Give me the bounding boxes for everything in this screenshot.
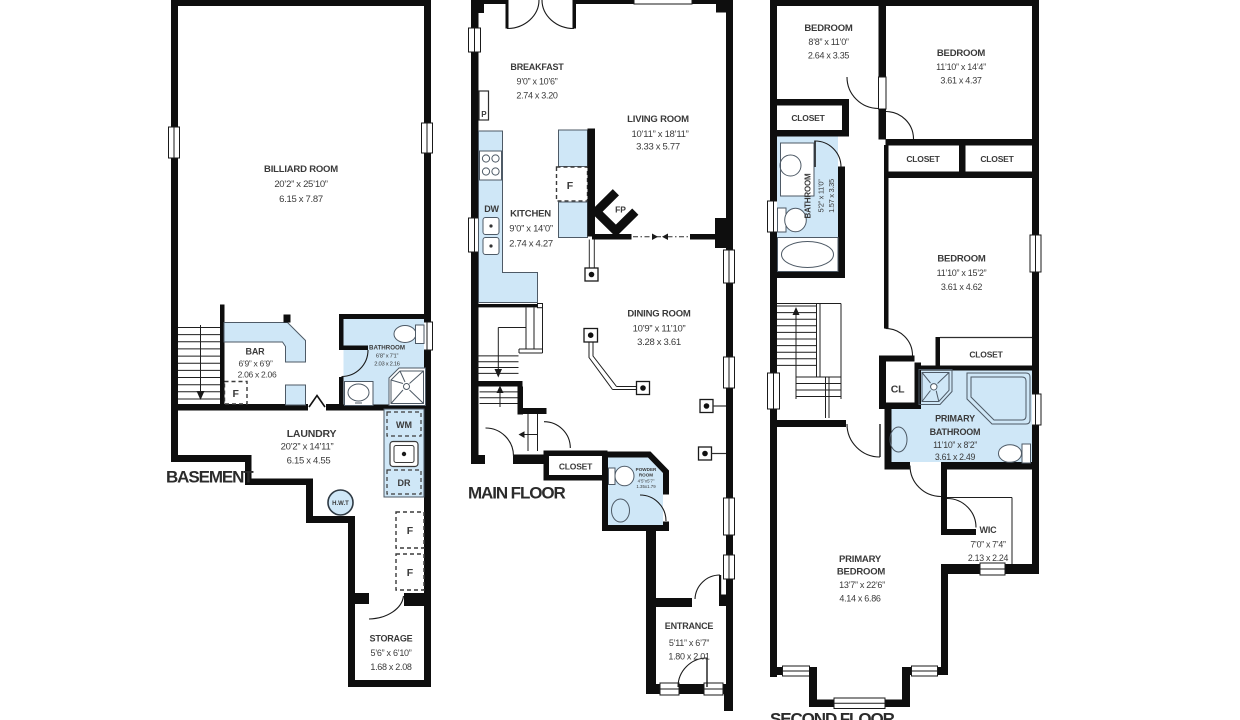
svg-text:DR: DR	[398, 478, 411, 488]
svg-text:9’0” x 14’0”: 9’0” x 14’0”	[509, 224, 553, 235]
svg-text:4.14 x 6.86: 4.14 x 6.86	[839, 594, 881, 604]
svg-text:SECOND FLOOR: SECOND FLOOR	[770, 710, 895, 720]
svg-text:ROOM: ROOM	[639, 473, 653, 478]
svg-text:BASEMENT: BASEMENT	[166, 468, 254, 487]
svg-text:1.80 x 2.01: 1.80 x 2.01	[668, 652, 710, 662]
svg-text:BREAKFAST: BREAKFAST	[510, 62, 564, 72]
svg-text:FP: FP	[615, 205, 626, 215]
svg-text:6’9” x 6’9”: 6’9” x 6’9”	[238, 359, 272, 369]
svg-text:11’10” x 14’4”: 11’10” x 14’4”	[936, 62, 986, 72]
svg-text:BILLIARD ROOM: BILLIARD ROOM	[264, 164, 338, 175]
svg-text:CLOSET: CLOSET	[559, 462, 593, 472]
svg-text:BATHROOM: BATHROOM	[369, 345, 405, 352]
svg-text:WIC: WIC	[980, 525, 998, 535]
svg-text:STORAGE: STORAGE	[370, 634, 413, 644]
svg-text:CLOSET: CLOSET	[969, 350, 1003, 360]
svg-text:3.33 x 5.77: 3.33 x 5.77	[636, 142, 680, 153]
svg-text:ENTRANCE: ENTRANCE	[665, 621, 714, 631]
svg-text:5’2” x 11’0”: 5’2” x 11’0”	[817, 179, 826, 213]
svg-text:7’0” x 7’4”: 7’0” x 7’4”	[970, 540, 1006, 550]
svg-text:8’8” x 11’0”: 8’8” x 11’0”	[808, 37, 849, 47]
svg-text:5’11” x 6’7”: 5’11” x 6’7”	[669, 638, 710, 648]
svg-text:F: F	[567, 180, 574, 192]
svg-text:6.15 x 7.87: 6.15 x 7.87	[279, 194, 323, 205]
svg-text:9’0” x 10’6”: 9’0” x 10’6”	[517, 77, 558, 87]
svg-text:LIVING ROOM: LIVING ROOM	[627, 114, 689, 125]
svg-text:1.57 x 3.35: 1.57 x 3.35	[827, 179, 836, 213]
svg-text:2.13 x 2.24: 2.13 x 2.24	[968, 553, 1009, 563]
svg-text:BEDROOM: BEDROOM	[937, 254, 985, 265]
svg-text:2.03 x 2.16: 2.03 x 2.16	[374, 362, 399, 368]
svg-text:BATHROOM: BATHROOM	[930, 427, 981, 437]
svg-text:5’6” x 6’10”: 5’6” x 6’10”	[371, 648, 412, 658]
svg-text:3.61 x 4.37: 3.61 x 4.37	[940, 76, 982, 86]
svg-text:P: P	[481, 110, 487, 119]
svg-text:3.61 x 4.62: 3.61 x 4.62	[941, 282, 983, 292]
svg-text:1.35x1.79: 1.35x1.79	[636, 484, 656, 489]
svg-text:POWDER: POWDER	[636, 467, 657, 472]
svg-text:20’2” x 25’10”: 20’2” x 25’10”	[274, 179, 327, 190]
svg-text:2.64 x 3.35: 2.64 x 3.35	[808, 51, 850, 61]
svg-text:2.06 x 2.06: 2.06 x 2.06	[238, 370, 277, 380]
svg-text:CLOSET: CLOSET	[791, 113, 825, 123]
svg-text:LAUNDRY: LAUNDRY	[287, 428, 337, 440]
svg-text:PRIMARY: PRIMARY	[839, 554, 882, 565]
svg-text:PRIMARY: PRIMARY	[935, 414, 975, 424]
svg-text:H.W.T: H.W.T	[332, 501, 349, 507]
svg-text:BEDROOM: BEDROOM	[837, 567, 885, 578]
svg-text:BATHROOM: BATHROOM	[804, 173, 813, 218]
svg-text:1.68 x 2.08: 1.68 x 2.08	[370, 662, 412, 672]
svg-text:BEDROOM: BEDROOM	[937, 48, 985, 59]
svg-text:F: F	[407, 525, 414, 537]
svg-text:4’5”x5’7”: 4’5”x5’7”	[638, 479, 655, 484]
svg-text:MAIN FLOOR: MAIN FLOOR	[468, 484, 565, 503]
svg-text:CLOSET: CLOSET	[906, 154, 940, 164]
svg-text:F: F	[232, 388, 239, 400]
svg-text:11’10” x 8’2”: 11’10” x 8’2”	[933, 440, 977, 450]
svg-text:BAR: BAR	[246, 347, 266, 357]
svg-text:F: F	[407, 567, 414, 579]
svg-text:CLOSET: CLOSET	[980, 154, 1014, 164]
svg-text:DINING ROOM: DINING ROOM	[627, 309, 691, 320]
svg-text:6’8” x 7’1”: 6’8” x 7’1”	[376, 354, 399, 360]
svg-text:3.28 x 3.61: 3.28 x 3.61	[637, 337, 681, 348]
svg-text:10’9” x 11’10”: 10’9” x 11’10”	[633, 324, 686, 335]
svg-text:3.61 x 2.49: 3.61 x 2.49	[935, 452, 976, 462]
svg-text:2.74 x 4.27: 2.74 x 4.27	[509, 239, 553, 250]
svg-text:10’11” x 18’11”: 10’11” x 18’11”	[632, 129, 689, 140]
svg-text:DW: DW	[484, 204, 499, 214]
svg-text:20’2” x 14’11”: 20’2” x 14’11”	[281, 442, 334, 453]
svg-text:6.15 x 4.55: 6.15 x 4.55	[287, 456, 331, 467]
svg-text:CL: CL	[891, 384, 905, 396]
svg-text:WM: WM	[396, 420, 412, 430]
svg-text:2.74 x 3.20: 2.74 x 3.20	[516, 91, 558, 101]
svg-text:13’7” x 22’6”: 13’7” x 22’6”	[839, 580, 885, 590]
svg-text:BEDROOM: BEDROOM	[804, 23, 852, 34]
svg-text:KITCHEN: KITCHEN	[510, 209, 551, 220]
svg-text:11’10” x 15’2”: 11’10” x 15’2”	[937, 268, 987, 278]
